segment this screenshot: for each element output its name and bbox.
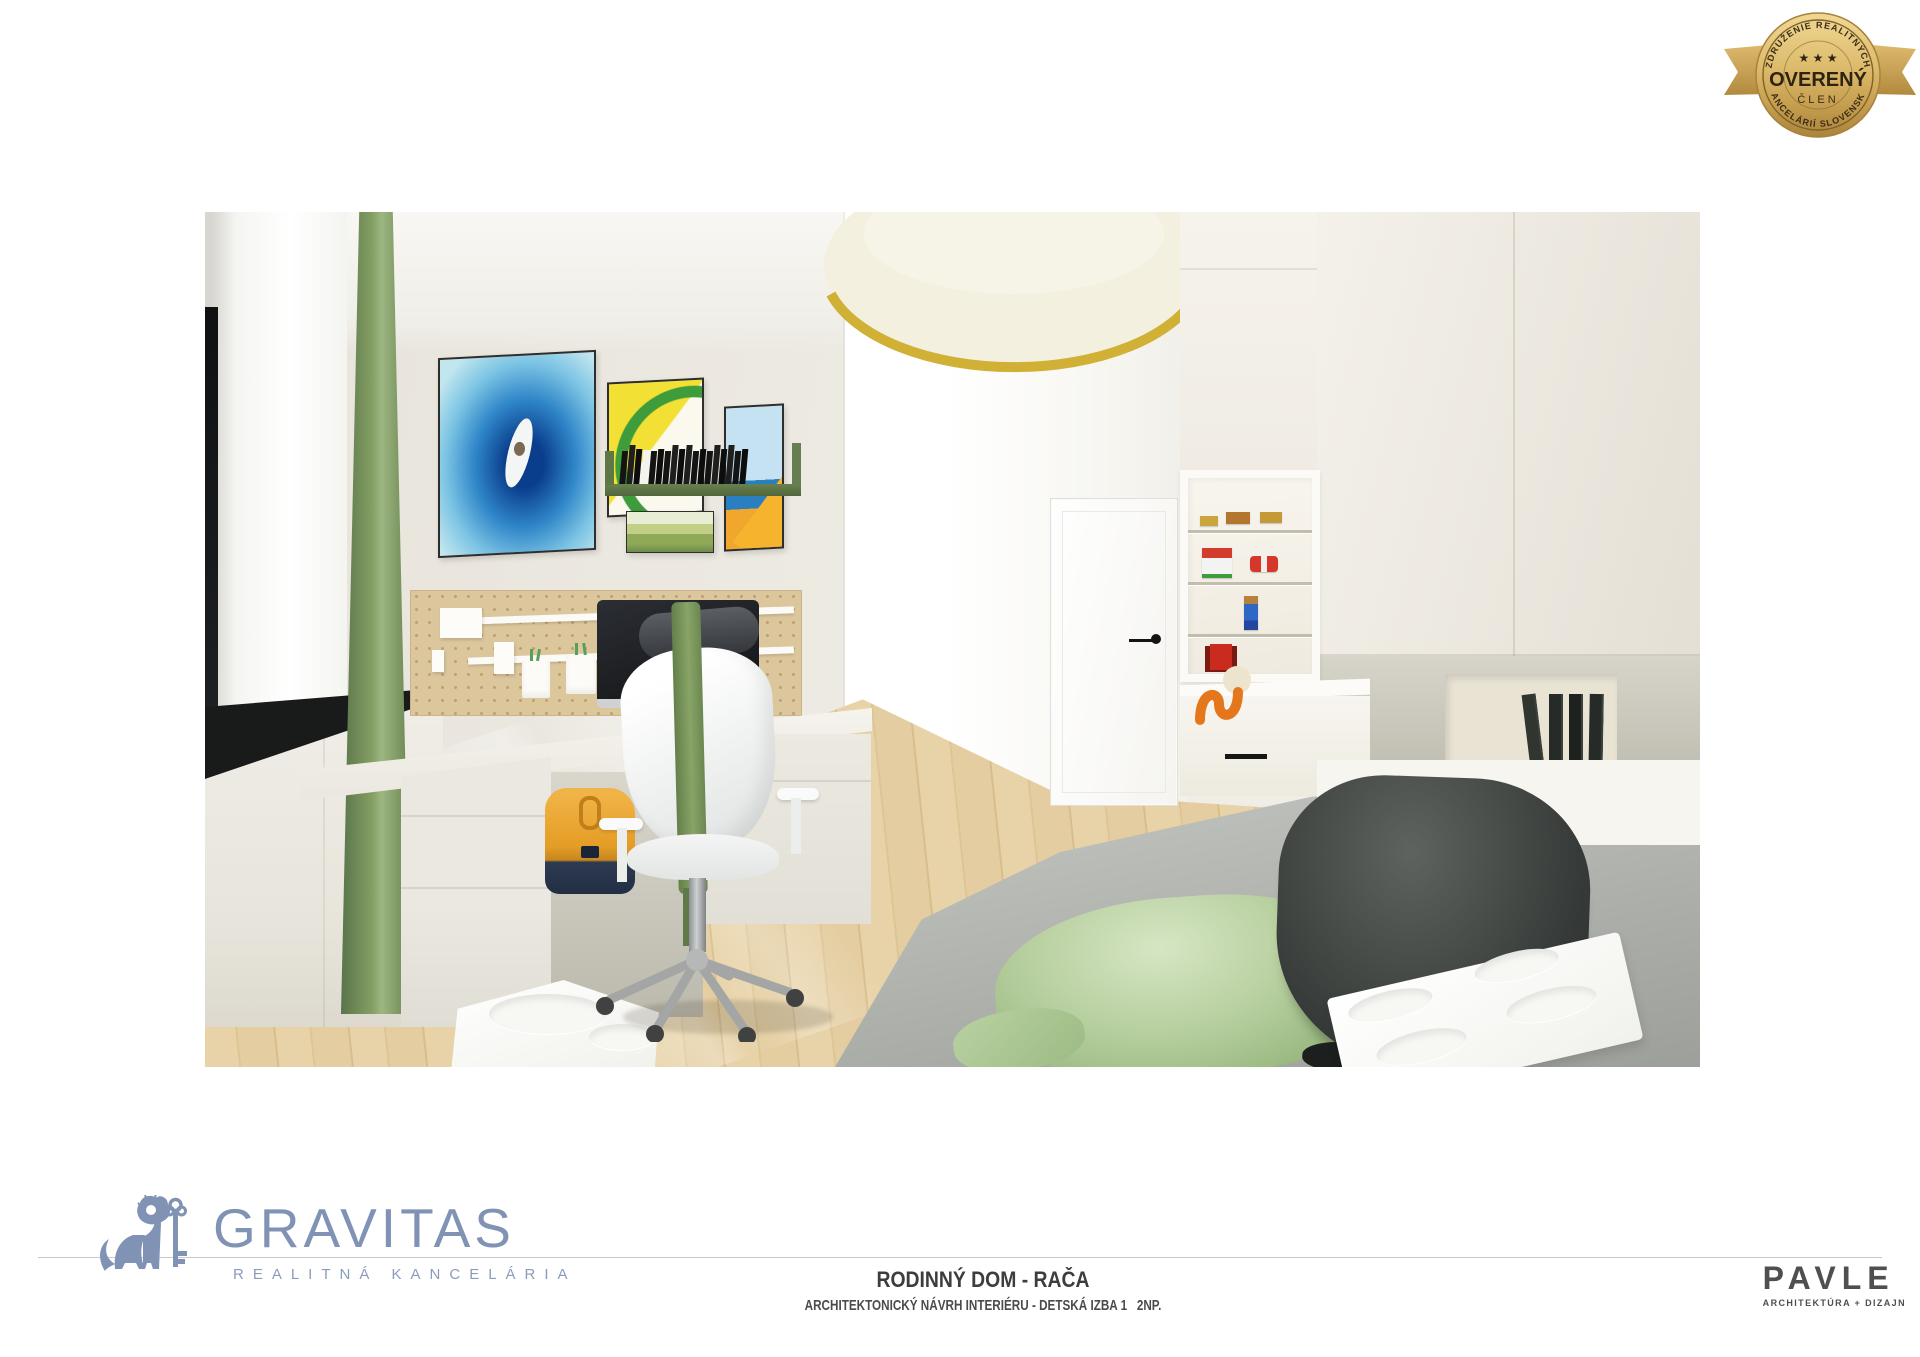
chair-base: [583, 932, 845, 1042]
project-caption: RODINNÝ DOM - RAČA ARCHITEKTONICKÝ NÁVRH…: [23, 1267, 1920, 1314]
toy-display-cabinet: [1180, 470, 1320, 682]
tv-screen-edge: [205, 307, 218, 719]
badge-subtitle: ČLEN: [1797, 93, 1838, 106]
pavle-wordmark: PAVLE: [1763, 1262, 1906, 1294]
wall-shelf-books: [605, 438, 801, 496]
wall-art-blue-surfer: [438, 350, 596, 558]
ceiling-light: [817, 212, 1212, 379]
badge-title: OVERENÝ: [1769, 67, 1867, 91]
toy-car: [1226, 512, 1250, 524]
project-title: RODINNÝ DOM - RAČA: [138, 1267, 1828, 1293]
wall-art-landscape: [626, 511, 714, 553]
pavle-logo: PAVLE ARCHITEKTÚRA + DIZAJN: [1763, 1262, 1906, 1308]
project-subtitle: ARCHITEKTONICKÝ NÁVRH INTERIÉRU - DETSKÁ…: [234, 1297, 1732, 1314]
badge-stars-icon: ★ ★ ★: [1799, 51, 1838, 65]
desk-drawers-left: [401, 757, 551, 1027]
interior-render: [205, 212, 1700, 1067]
squiggle-lamp: [1191, 660, 1257, 726]
toy-lego-house: [1202, 548, 1232, 578]
toy-car: [1200, 516, 1218, 526]
gravitas-wordmark: GRAVITAS: [213, 1201, 577, 1256]
office-chair: [583, 602, 845, 1042]
upper-cabinet: [1180, 212, 1317, 472]
verified-member-badge: ZDRUŽENIE REALITNÝCH KANCELÁRIÍ SLOVENSK…: [1722, 2, 1918, 150]
toy-plane: [1250, 556, 1278, 572]
toy-figure: [1244, 596, 1258, 630]
window-light-wall: [205, 212, 347, 732]
pavle-tagline: ARCHITEKTÚRA + DIZAJN: [1763, 1298, 1906, 1308]
toy-car: [1260, 512, 1282, 523]
presentation-page: ZDRUŽENIE REALITNÝCH KANCELÁRIÍ SLOVENSK…: [0, 0, 1920, 1357]
door: [1050, 498, 1178, 806]
